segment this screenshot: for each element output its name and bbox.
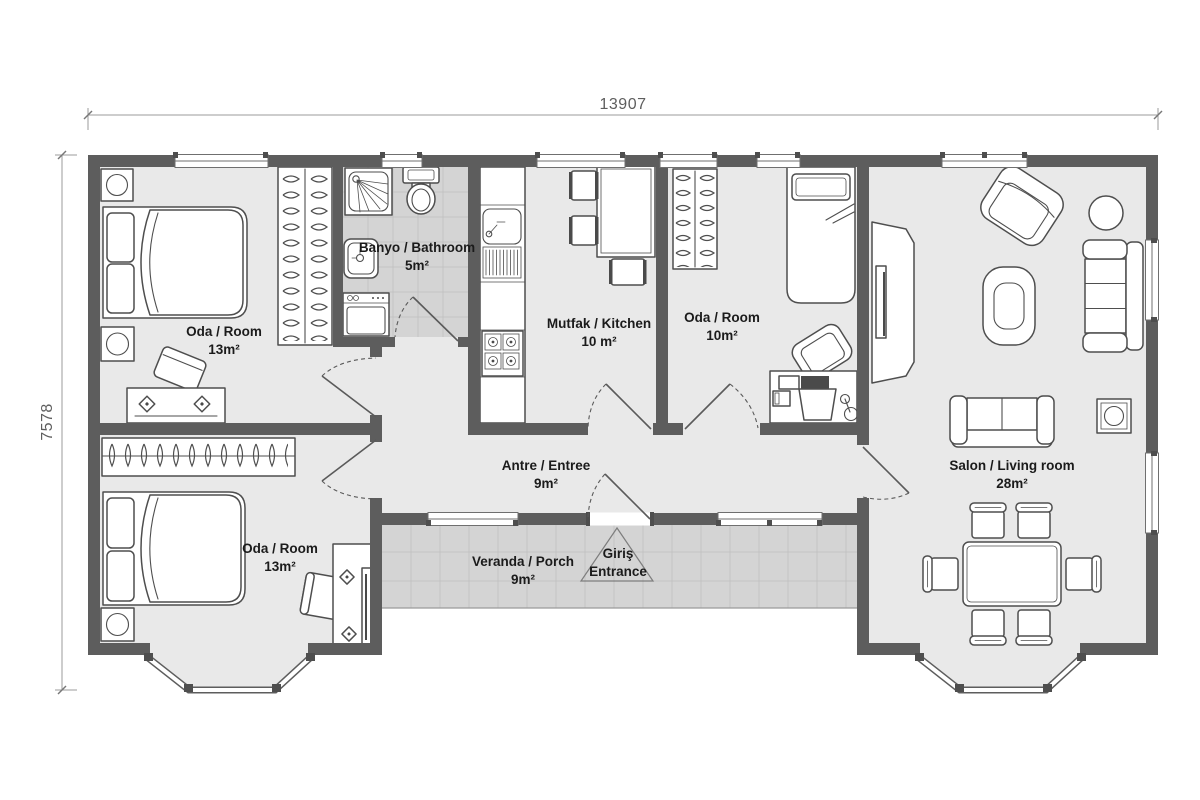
- nightstand-icon: [101, 327, 134, 361]
- width-dimension-label: 13907: [600, 96, 647, 113]
- room-name: Banyo / Bathroom: [359, 240, 475, 255]
- nightstand-icon: [101, 608, 134, 641]
- room-name: Mutfak / Kitchen: [547, 316, 651, 331]
- entrance-label-en: Entrance: [589, 564, 647, 579]
- round-table-icon: [1089, 196, 1123, 230]
- window-icon: [940, 152, 1027, 168]
- kitchen-chair-icon: [609, 259, 647, 285]
- stove-icon: [482, 331, 523, 376]
- dimension-left: 7578: [39, 151, 77, 694]
- sofa-3-seat-icon: [1083, 240, 1143, 352]
- room-area: 10 m²: [581, 334, 617, 349]
- room-name: Antre / Entree: [502, 458, 591, 473]
- kitchen-chair-icon: [569, 171, 599, 200]
- window-icon: [1146, 451, 1159, 535]
- entrance-label-tr: Giriş: [603, 546, 634, 561]
- room-name: Oda / Room: [684, 310, 760, 325]
- side-table-icon: [1097, 399, 1131, 433]
- window-icon: [173, 152, 268, 168]
- room-area: 10m²: [706, 328, 738, 343]
- desk-icon: [127, 388, 225, 423]
- open-wardrobe-icon: [102, 438, 295, 476]
- double-bed-icon: [103, 207, 247, 318]
- room-name: Oda / Room: [242, 541, 318, 556]
- window-icon: [658, 152, 717, 168]
- washing-machine-icon: [343, 293, 389, 336]
- room-area: 9m²: [534, 476, 559, 491]
- room-name: Salon / Living room: [949, 458, 1074, 473]
- desk-icon: [333, 544, 372, 648]
- room-area: 28m²: [996, 476, 1028, 491]
- window-icon: [380, 152, 422, 168]
- shower-icon: [345, 168, 392, 215]
- floor-plan-drawing: Oda / Room 13m² Banyo / Bathroom 5m² Mut…: [0, 0, 1200, 800]
- window-icon: [1146, 238, 1159, 322]
- coffee-table-icon: [983, 267, 1035, 345]
- room-area: 5m²: [405, 258, 430, 273]
- tv-unit-icon: [872, 222, 914, 383]
- room-name: Veranda / Porch: [472, 554, 574, 569]
- floor-plan-page: Oda / Room 13m² Banyo / Bathroom 5m² Mut…: [0, 0, 1200, 800]
- entrance-door-threshold: [586, 512, 654, 526]
- window-icon: [535, 152, 625, 168]
- kitchen-chair-icon: [569, 216, 599, 245]
- double-bed-icon: [103, 492, 245, 605]
- kitchen-table-icon: [597, 165, 655, 257]
- window-icon: [716, 513, 822, 527]
- window-icon: [755, 152, 800, 168]
- room-area: 9m²: [511, 572, 536, 587]
- window-icon: [426, 513, 518, 527]
- single-bed-icon: [787, 167, 855, 303]
- desk-icon: [770, 371, 858, 423]
- height-dimension-label: 7578: [39, 403, 56, 441]
- wardrobe-icon: [278, 167, 332, 345]
- dimension-top: 13907: [84, 96, 1162, 130]
- wardrobe-icon: [673, 169, 717, 269]
- sofa-2-seat-icon: [950, 396, 1054, 447]
- room-name: Oda / Room: [186, 324, 262, 339]
- room-area: 13m²: [264, 559, 296, 574]
- nightstand-icon: [101, 169, 133, 201]
- kitchen-counter-icon: [480, 167, 525, 423]
- room-area: 13m²: [208, 342, 240, 357]
